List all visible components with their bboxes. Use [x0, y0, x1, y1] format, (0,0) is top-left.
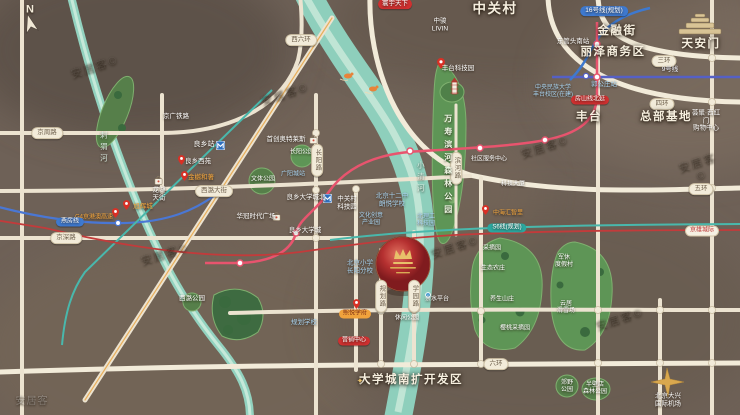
redpill-huanyu: 寰宇天下: [378, 0, 412, 9]
district-fengtai: 丰台: [576, 111, 602, 125]
label-guogongzhuang-station: 郭公庄站: [591, 81, 617, 89]
district-zhongguancun: 中关村: [473, 1, 518, 17]
watermark: 安居客©: [260, 81, 311, 109]
orangepill-xiyue: 熙悦学府: [339, 309, 371, 318]
pill-line16: 16号线(规划): [580, 6, 628, 16]
label-cherry-garden: 樱桃采摘园: [500, 325, 530, 332]
pill-changyang-road: 长阳路: [311, 144, 323, 177]
label-longhu-tianjie: 龙湖 天街: [153, 186, 166, 201]
pill-xilu-street: 西潞大街: [195, 185, 233, 197]
label-jingguang-rail: 京广铁路: [163, 113, 189, 121]
pill-ring6-west: 西六环: [285, 34, 317, 46]
redpill-marketing-center: 营销中心: [338, 336, 370, 345]
watermark: 安居客©: [140, 241, 191, 269]
watermark: 安居客©: [520, 134, 571, 162]
label-bj-primary-school: 北京小学 长阳分校: [347, 259, 373, 274]
map-canvas: 中关村16号线(规划)中骏 LIVIN寰宇天下金融街天安门丽泽商务区东管头南站三…: [0, 0, 740, 415]
redpill-fangshan-ext: 房山线北延: [571, 95, 609, 104]
label-xuhui-city: 旭辉城: [133, 203, 153, 211]
label-line9: 9号线: [662, 66, 679, 74]
icon-star: ✦: [357, 376, 364, 385]
district-lize: 丽泽商务区: [581, 46, 646, 60]
district-jinrongjie: 金融街: [598, 25, 637, 39]
district-expansion-zone: 大学城南扩开发区: [359, 374, 463, 388]
label-huiju-mall: 荟聚·西红门 购物中心: [689, 110, 723, 133]
pill-ring6: 六环: [484, 358, 509, 370]
label-eco-farm: 生态农庄: [481, 265, 505, 272]
label-service-center: 社区服务中心: [471, 156, 507, 163]
label-guangyangcheng-station: 广阳城站: [281, 171, 305, 178]
label-jiaoye-park: 郊野 公园: [561, 380, 573, 394]
pill-jingzhou-road: 京周路: [31, 127, 63, 139]
label-waterfront-deck: 亲水平台: [425, 296, 449, 303]
label-zgc-tech-park: 中关村 科技园: [337, 195, 357, 210]
label-liangxiang-xiyuan: 良乡西苑: [185, 158, 211, 166]
railpill-jingxiong: 京雄城际: [685, 225, 719, 236]
label-banbidian-park: 半壁店 森林公园: [583, 382, 607, 396]
watermark: 安居客©: [430, 234, 481, 262]
label-daxuecheng-station: 良乡大学城: [289, 227, 322, 235]
label-daxuecheng-north-station: 良乡大学城北: [287, 194, 326, 202]
map-labels-layer: 中关村16号线(规划)中骏 LIVIN寰宇天下金融街天安门丽泽商务区东管头南站三…: [0, 0, 740, 415]
pill-ring4: 四环: [650, 98, 675, 110]
label-fengtai-tech-park: 丰台科技园: [442, 65, 475, 73]
label-xilu-park: 西潞公园: [179, 295, 205, 303]
label-bit-tech-park: 北理工 科技园: [417, 214, 435, 228]
label-zhonghai: 中海汇智里: [493, 210, 523, 217]
label-shouchuang-outlets: 首创奥特莱斯: [267, 136, 306, 144]
label-liangxiang-station: 良乡站: [194, 141, 215, 149]
label-yunju-ski: 云居 滑雪场: [557, 301, 575, 315]
label-daxing-airport: 北京大兴 国际机场: [655, 392, 681, 407]
label-no12-school: 北京十二中 朗悦学校: [376, 192, 409, 207]
compass-label: N: [26, 4, 34, 17]
label-binhe-forest-park: 万寿滨河森林公园: [443, 114, 452, 218]
label-picking-garden: 采摘园: [483, 245, 501, 252]
label-ciwei-river: 刺猬河: [99, 131, 108, 166]
district-zongbu-jidi: 总部基地: [640, 111, 692, 125]
tealpill-s6-line: S6线(规划): [487, 223, 526, 232]
pill-guihua-road: 规划路: [375, 280, 387, 313]
label-wellness-villa: 养生山庄: [490, 296, 514, 303]
label-dongguantou-station: 东管头南站: [557, 38, 590, 46]
district-tiananmen: 天安门: [682, 38, 721, 52]
bluepill-yanfang-line: 燕房线: [56, 217, 84, 226]
watermark: 安居客©: [70, 54, 121, 82]
watermark: 安居客©: [677, 151, 723, 188]
watermark-logo: 安居客: [16, 396, 49, 408]
pill-xueyuan-road: 学园路: [408, 280, 420, 313]
label-minzu-university: 中央民族大学 丰台校区(在建): [533, 85, 573, 99]
pill-ring3: 三环: [652, 55, 677, 67]
label-planned-school: 规划学校: [291, 319, 317, 327]
label-leisure-park: 休闲公园: [395, 315, 419, 322]
label-wenchuang-park: 文化创意 产业园: [359, 213, 383, 227]
label-huaguan-plaza: 华冠时代广场: [237, 213, 276, 221]
label-junxiu-resort: 军休 度假村: [555, 255, 573, 269]
pill-jingshen-road: 京深路: [50, 232, 82, 244]
label-jinyue-hezhu: 金樾和著: [188, 174, 214, 182]
label-zhongjun-livin: 中骏 LIVIN: [432, 17, 448, 32]
watermark: 安居客©: [595, 306, 646, 334]
label-tech-tower: 科技大厦: [501, 181, 525, 188]
label-xiaoqing-river: 小清河: [416, 161, 425, 196]
label-wenti-park: 文体公园: [251, 176, 275, 183]
